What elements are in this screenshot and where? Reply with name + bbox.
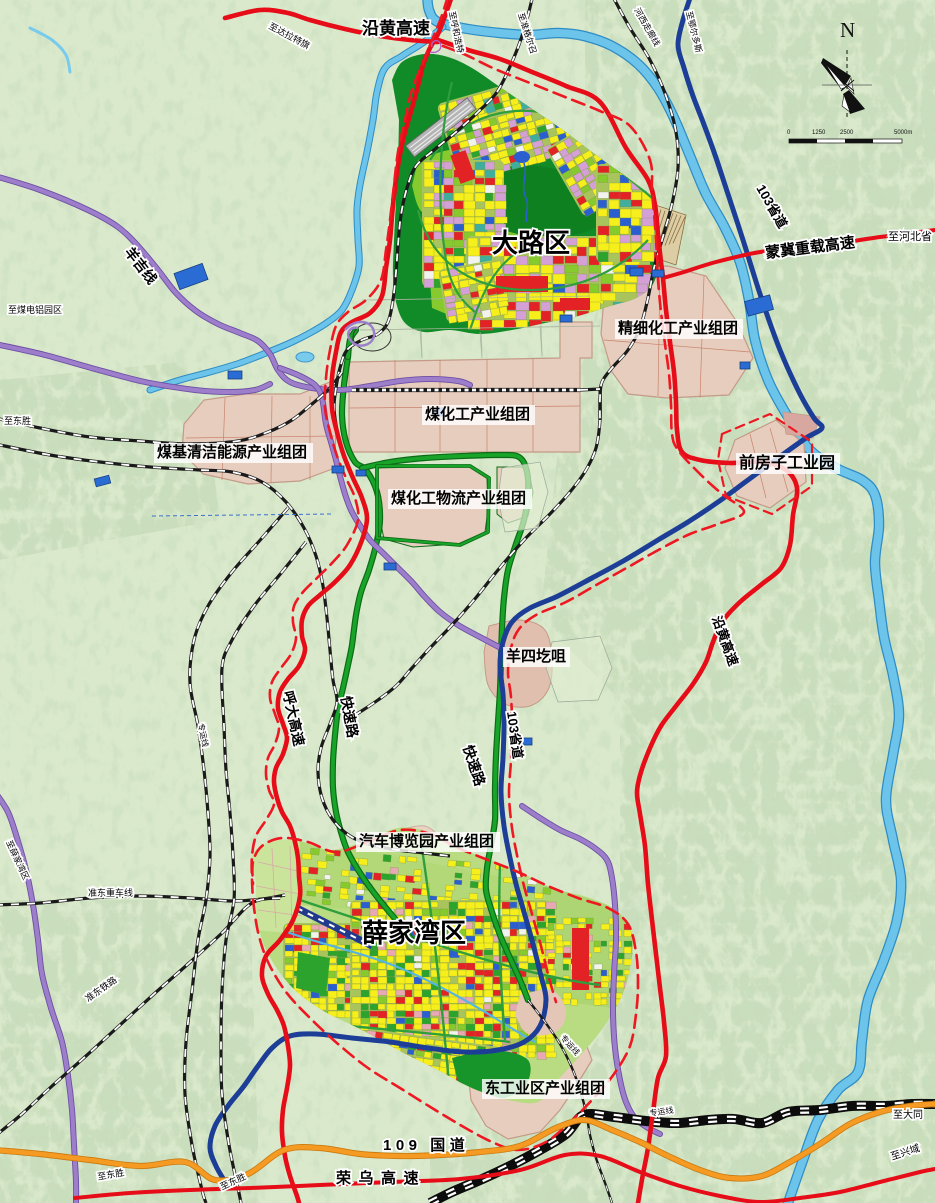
- svg-text:2500: 2500: [840, 130, 854, 136]
- svg-text:精细化工产业组团: 精细化工产业组团: [618, 319, 738, 337]
- svg-text:至东胜: 至东胜: [4, 415, 31, 426]
- svg-text:东工业区产业组团: 东工业区产业组团: [485, 1079, 605, 1097]
- svg-text:大路区: 大路区: [492, 228, 570, 258]
- svg-text:煤基清洁能源产业组团: 煤基清洁能源产业组团: [157, 443, 307, 461]
- svg-text:煤化工物流产业组团: 煤化工物流产业组团: [391, 489, 526, 507]
- svg-text:1250: 1250: [812, 130, 826, 136]
- svg-text:5000m: 5000m: [894, 130, 912, 136]
- svg-text:N: N: [840, 18, 855, 42]
- svg-text:109 国道: 109 国道: [383, 1136, 469, 1154]
- svg-text:羊四圪咀: 羊四圪咀: [506, 647, 566, 665]
- svg-text:准东重车线: 准东重车线: [88, 887, 133, 898]
- svg-text:薛家湾区: 薛家湾区: [362, 918, 466, 948]
- svg-text:汽车博览园产业组团: 汽车博览园产业组团: [359, 832, 494, 850]
- svg-text:至河北省: 至河北省: [888, 230, 932, 243]
- svg-text:沿黄高速: 沿黄高速: [362, 18, 430, 38]
- svg-text:至大同: 至大同: [893, 1108, 923, 1121]
- svg-text:至煤电铝园区: 至煤电铝园区: [8, 304, 62, 315]
- svg-text:荣乌高速: 荣乌高速: [335, 1169, 426, 1187]
- svg-text:煤化工产业组团: 煤化工产业组团: [425, 405, 530, 423]
- svg-text:前房子工业园: 前房子工业园: [739, 453, 835, 472]
